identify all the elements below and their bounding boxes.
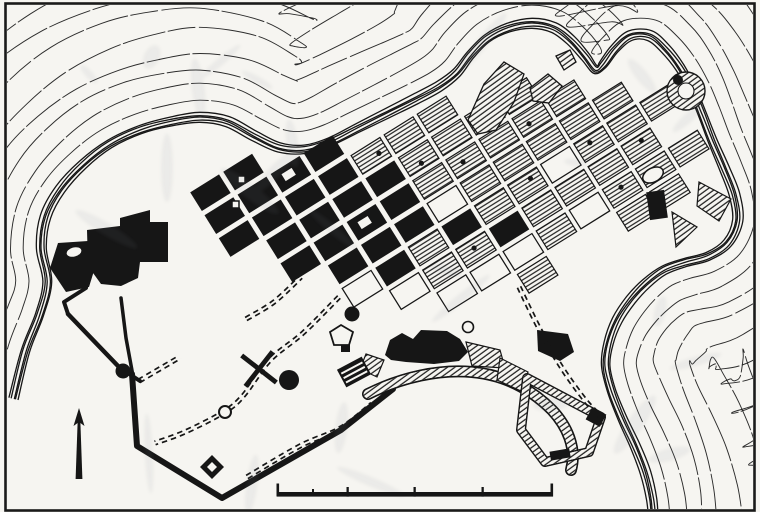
scanned-page (0, 0, 760, 524)
road-tower-ring (219, 406, 231, 418)
small-ring-building (463, 322, 474, 333)
city-plan-figure (0, 0, 760, 524)
wall-tower (116, 364, 131, 379)
round-building (345, 307, 360, 322)
round-monument (279, 370, 299, 390)
